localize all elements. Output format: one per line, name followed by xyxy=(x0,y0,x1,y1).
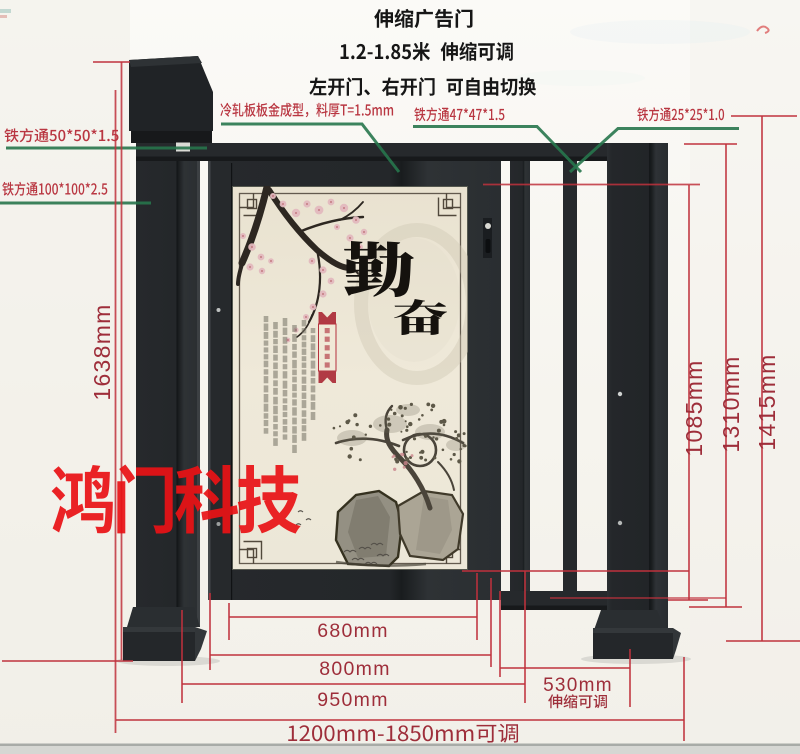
svg-text:680mm: 680mm xyxy=(317,620,389,642)
svg-text:530mm: 530mm xyxy=(543,675,613,696)
svg-text:1085mm: 1085mm xyxy=(681,359,707,456)
svg-text:1638mm: 1638mm xyxy=(89,303,115,400)
svg-text:1310mm: 1310mm xyxy=(718,355,744,452)
svg-text:800mm: 800mm xyxy=(319,658,391,680)
svg-text:950mm: 950mm xyxy=(317,689,389,711)
svg-text:1415mm: 1415mm xyxy=(754,353,780,450)
